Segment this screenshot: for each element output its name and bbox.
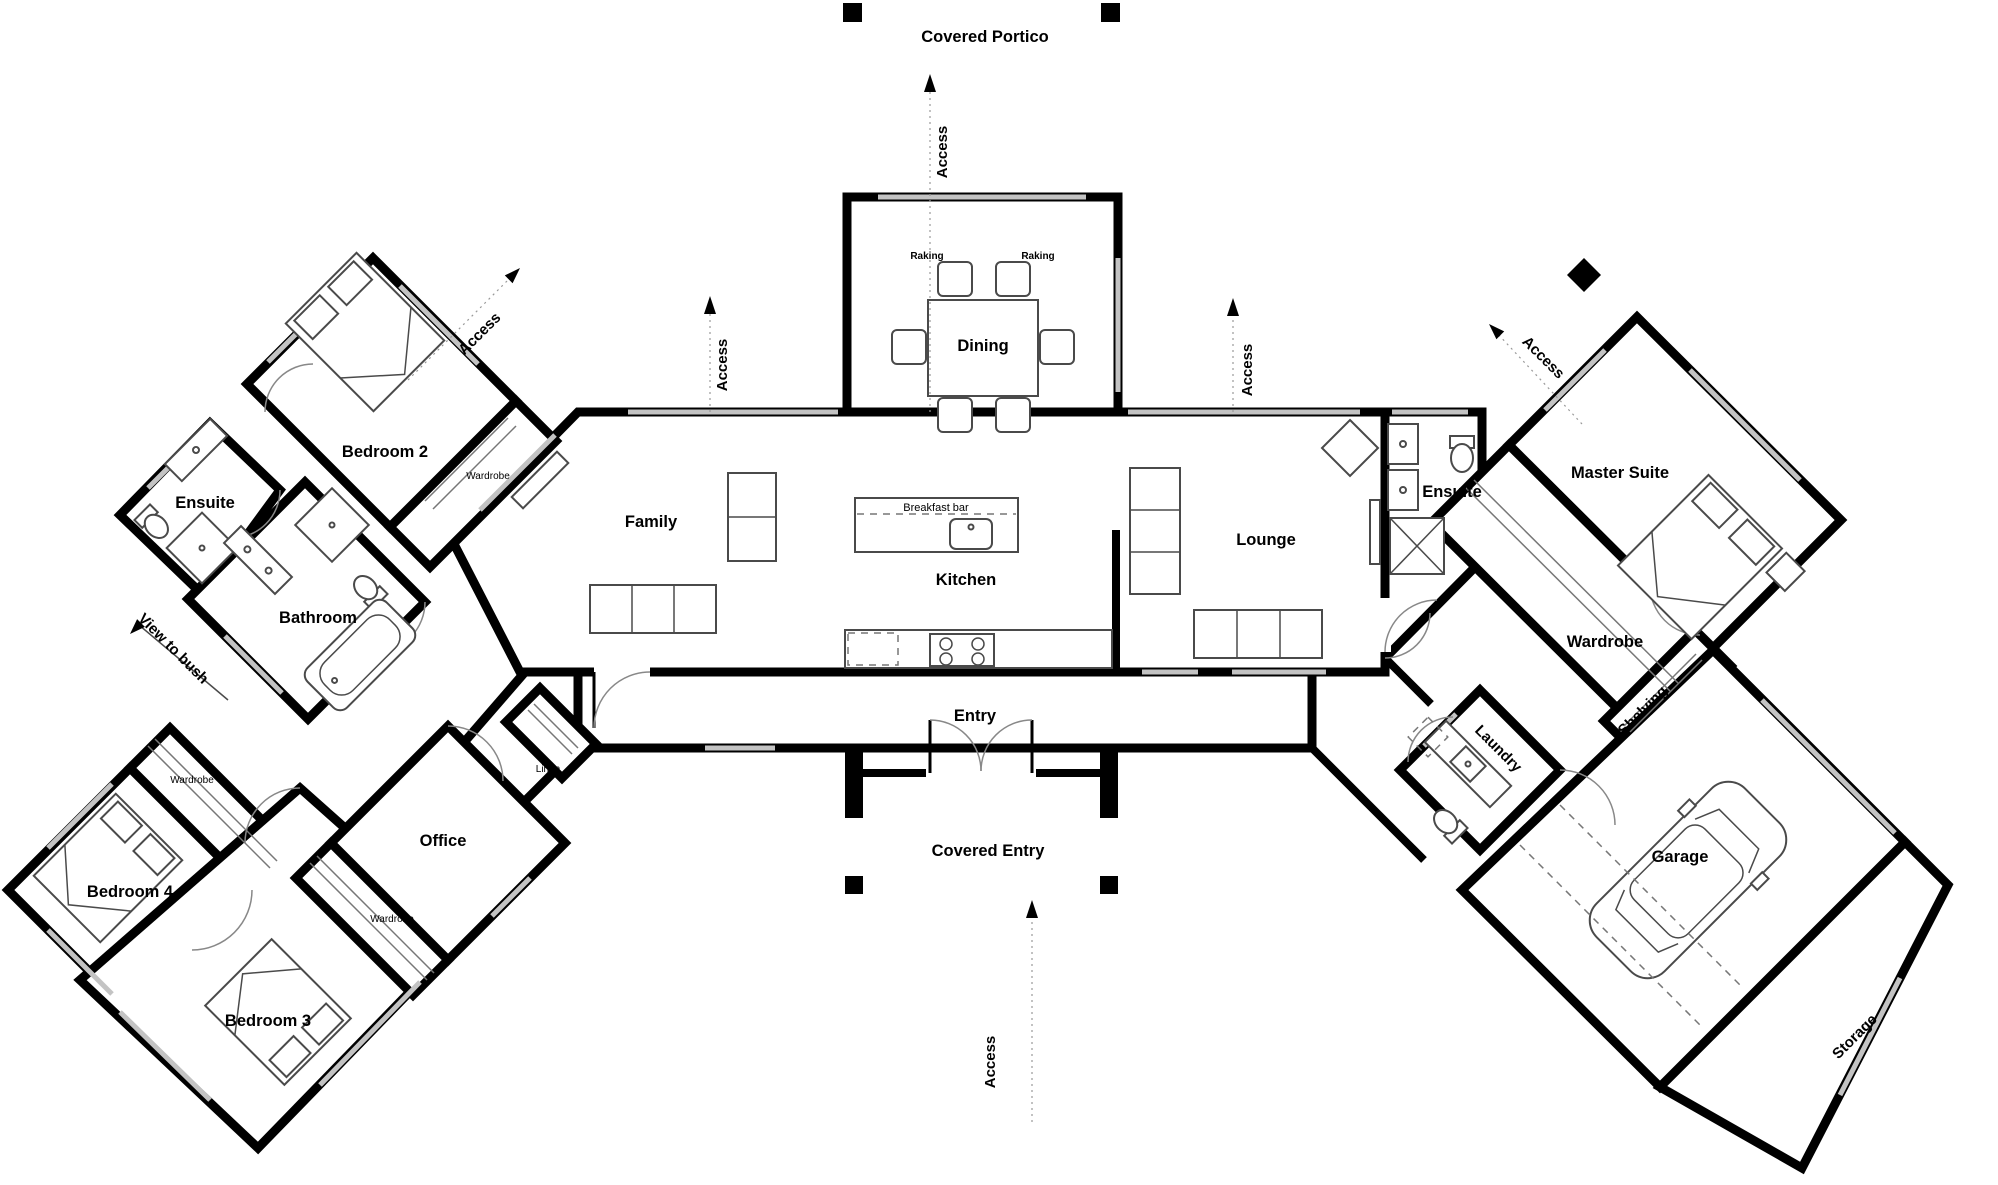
raking-label: Raking (910, 251, 943, 262)
entry-pier-left (845, 748, 863, 818)
floor-plan-svg: Covered Portico Covered Entry Dining Fam… (0, 0, 1998, 1185)
room-label-bedroom3: Bedroom 3 (225, 1012, 311, 1030)
wardrobe-small-label: Wardrobe (170, 775, 214, 786)
raking-label: Raking (1021, 251, 1054, 262)
covered-portico-label: Covered Portico (921, 28, 1048, 46)
floor-plan: Covered Portico Covered Entry Dining Fam… (0, 0, 1998, 1185)
room-label-garage: Garage (1652, 848, 1709, 866)
room-label-master-suite: Master Suite (1571, 464, 1669, 482)
diamond-post (1567, 258, 1601, 292)
access-label-top: Access (934, 126, 951, 179)
access-label-family: Access (714, 339, 731, 392)
room-label-bedroom2: Bedroom 2 (342, 443, 428, 461)
wardrobe-small-label: Wardrobe (370, 914, 414, 925)
entry-pier-right (1100, 748, 1118, 818)
access-label-lounge: Access (1239, 344, 1256, 397)
wardrobe-small-label: Wardrobe (466, 471, 510, 482)
room-label-ensuite-right: Ensuite (1422, 483, 1482, 501)
room-label-wardrobe-master: Wardrobe (1567, 633, 1643, 651)
room-label-dining: Dining (957, 337, 1008, 355)
room-label-entry: Entry (954, 707, 997, 725)
room-label-office: Office (420, 832, 467, 850)
room-label-bathroom: Bathroom (279, 609, 357, 627)
room-label-ensuite-left: Ensuite (175, 494, 235, 512)
access-label-bedroom2: Access (455, 309, 504, 358)
portico-post (843, 3, 862, 22)
portico-post (1101, 3, 1120, 22)
access-label-master: Access (1519, 333, 1568, 382)
view-to-bush-label: View to bush (135, 610, 212, 687)
linen-label: Linen (536, 764, 560, 775)
room-label-kitchen: Kitchen (936, 571, 997, 589)
access-arrow-lounge (1227, 298, 1239, 412)
room-label-family: Family (625, 513, 678, 531)
kitchen-counter-icon (845, 630, 1112, 668)
entry-post (845, 876, 863, 894)
room-label-lounge: Lounge (1236, 531, 1296, 549)
hall-right-wall (1385, 658, 1431, 704)
covered-entry-label: Covered Entry (932, 842, 1046, 860)
access-label-bottom: Access (982, 1036, 999, 1089)
entry-corridor-walls (578, 672, 1312, 748)
access-arrow-bottom (1026, 900, 1038, 1122)
breakfast-bar-label: Breakfast bar (903, 502, 969, 514)
entry-post (1100, 876, 1118, 894)
room-label-bedroom4: Bedroom 4 (87, 883, 174, 901)
